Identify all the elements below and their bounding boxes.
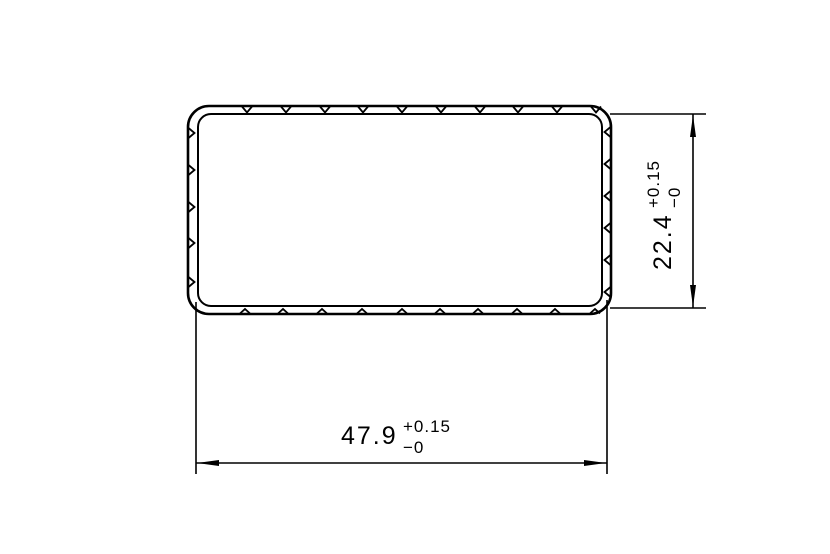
arrow-right-icon <box>584 460 606 466</box>
height-dim-tolerance-plus: +0.15 <box>644 160 663 208</box>
width-dim-value: 47.9 <box>341 422 398 450</box>
serration-notches-top-icon <box>242 107 601 113</box>
profile-drawing: 22.4 +0.15 −0 47.9 +0.15 −0 <box>0 0 830 554</box>
profile-inner-contour <box>198 114 602 306</box>
tube-profile <box>188 106 611 314</box>
arrow-up-icon <box>690 115 696 137</box>
arrow-down-icon <box>690 285 696 307</box>
width-dim-tolerance-plus: +0.15 <box>403 417 451 436</box>
profile-outer-contour <box>188 106 611 314</box>
arrow-left-icon <box>197 460 219 466</box>
width-dim-tolerance-minus: −0 <box>403 438 424 457</box>
serration-notches-right-icon <box>605 127 611 297</box>
technical-drawing-canvas: 22.4 +0.15 −0 47.9 +0.15 −0 <box>0 0 830 554</box>
height-dimension: 22.4 +0.15 −0 <box>610 114 706 308</box>
height-dim-value: 22.4 <box>649 213 677 270</box>
serration-notches-left-icon <box>189 128 195 287</box>
width-dimension: 47.9 +0.15 −0 <box>196 300 607 474</box>
height-dim-tolerance-minus: −0 <box>665 187 684 208</box>
